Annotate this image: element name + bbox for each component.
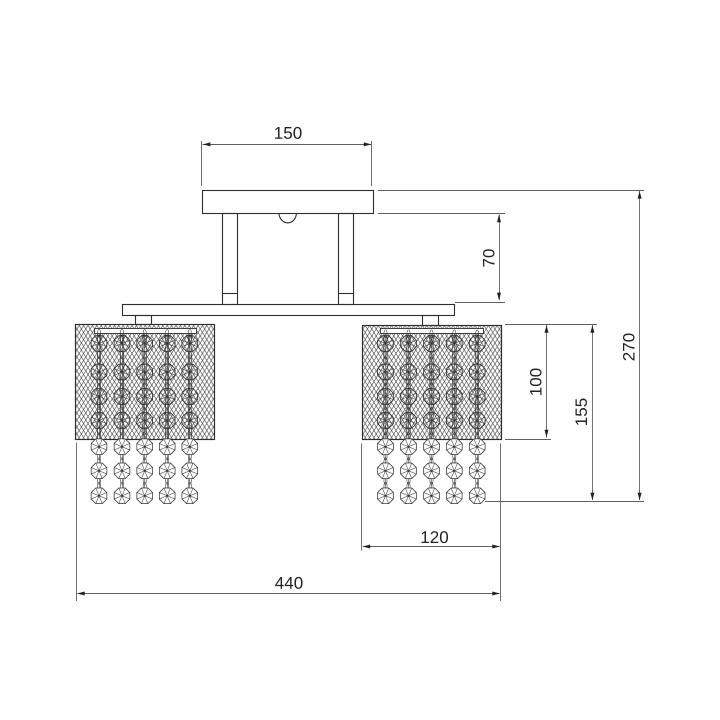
svg-text:270: 270 bbox=[620, 333, 639, 361]
svg-text:150: 150 bbox=[274, 124, 302, 143]
svg-text:100: 100 bbox=[527, 368, 546, 396]
svg-text:155: 155 bbox=[572, 398, 591, 426]
svg-text:70: 70 bbox=[480, 249, 499, 268]
svg-text:120: 120 bbox=[420, 528, 448, 547]
svg-text:440: 440 bbox=[275, 574, 303, 593]
